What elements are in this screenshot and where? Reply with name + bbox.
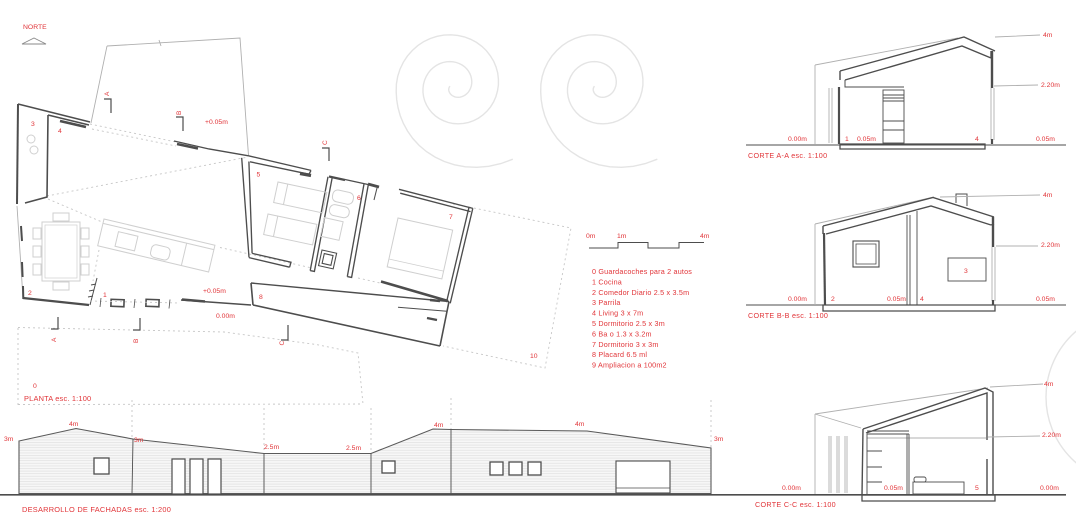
svg-text:4m: 4m [1043, 192, 1053, 199]
svg-text:0.05m: 0.05m [884, 485, 903, 492]
svg-text:2.20m: 2.20m [1041, 242, 1060, 249]
svg-text:NORTE: NORTE [23, 24, 47, 31]
svg-text:5 Dormitorio 2.5 x 3m: 5 Dormitorio 2.5 x 3m [592, 319, 665, 328]
svg-text:0 Guardacoches para 2 autos: 0 Guardacoches para 2 autos [592, 267, 692, 276]
svg-text:0.00m: 0.00m [216, 313, 235, 320]
svg-text:1: 1 [103, 292, 107, 299]
svg-text:2 Comedor Diario 2.5 x 3.5m: 2 Comedor Diario 2.5 x 3.5m [592, 288, 689, 297]
svg-text:3: 3 [964, 268, 968, 275]
svg-text:PLANTA esc. 1:100: PLANTA esc. 1:100 [24, 394, 91, 403]
svg-text:2: 2 [831, 296, 835, 303]
svg-text:4: 4 [58, 128, 62, 135]
svg-text:4m: 4m [1043, 32, 1053, 39]
svg-text:6: 6 [357, 195, 361, 202]
svg-text:8 Placard 6.5 ml: 8 Placard 6.5 ml [592, 350, 647, 359]
svg-text:4m: 4m [700, 233, 710, 240]
svg-text:4m: 4m [575, 421, 585, 428]
svg-text:4 Living 3 x 7m: 4 Living 3 x 7m [592, 309, 643, 318]
svg-text:+0.05m: +0.05m [203, 288, 226, 295]
svg-text:10: 10 [530, 353, 538, 360]
svg-text:0.05m: 0.05m [1036, 296, 1055, 303]
svg-text:3m: 3m [134, 437, 144, 444]
svg-text:4m: 4m [434, 422, 444, 429]
svg-text:1: 1 [845, 136, 849, 143]
svg-text:2.20m: 2.20m [1041, 82, 1060, 89]
svg-text:B: B [176, 111, 183, 115]
svg-text:A: A [104, 91, 111, 96]
svg-text:7 Dormitorio 3 x 3m: 7 Dormitorio 3 x 3m [592, 340, 659, 349]
svg-text:3m: 3m [4, 436, 14, 443]
svg-text:5: 5 [975, 485, 979, 492]
svg-text:6 Ba o 1.3 x 3.2m: 6 Ba o 1.3 x 3.2m [592, 329, 652, 338]
svg-text:C: C [279, 341, 286, 346]
svg-text:A: A [51, 337, 58, 342]
svg-text:0.05m: 0.05m [887, 296, 906, 303]
svg-text:4: 4 [920, 296, 924, 303]
svg-text:4m: 4m [69, 421, 79, 428]
svg-text:5: 5 [257, 172, 261, 179]
svg-text:1m: 1m [617, 233, 627, 240]
svg-text:0.00m: 0.00m [782, 485, 801, 492]
svg-text:3: 3 [31, 121, 35, 128]
svg-text:0.00m: 0.00m [788, 296, 807, 303]
svg-text:2.5m: 2.5m [346, 445, 361, 452]
svg-text:DESARROLLO DE FACHADAS esc. 1:: DESARROLLO DE FACHADAS esc. 1:200 [22, 505, 171, 514]
svg-text:3 Parrila: 3 Parrila [592, 298, 621, 307]
svg-text:2.5m: 2.5m [264, 444, 279, 451]
svg-text:0.00m: 0.00m [1040, 485, 1059, 492]
svg-text:2.20m: 2.20m [1042, 432, 1061, 439]
svg-text:C: C [322, 140, 329, 145]
svg-text:9 Ampliacion a 100m2: 9 Ampliacion a 100m2 [592, 361, 667, 370]
svg-text:B: B [133, 339, 140, 343]
svg-text:0.05m: 0.05m [857, 136, 876, 143]
svg-text:0.05m: 0.05m [1036, 136, 1055, 143]
svg-text:0m: 0m [586, 233, 596, 240]
svg-text:+0.05m: +0.05m [205, 119, 228, 126]
svg-text:4: 4 [975, 136, 979, 143]
svg-text:7: 7 [449, 214, 453, 221]
svg-text:1 Cocina: 1 Cocina [592, 277, 622, 286]
svg-text:0: 0 [33, 383, 37, 390]
svg-text:4m: 4m [1044, 381, 1054, 388]
svg-text:3m: 3m [714, 436, 724, 443]
svg-text:0.00m: 0.00m [788, 136, 807, 143]
svg-text:2: 2 [28, 290, 32, 297]
svg-text:CORTE A-A esc. 1:100: CORTE A-A esc. 1:100 [748, 151, 827, 160]
svg-text:CORTE B-B esc. 1:100: CORTE B-B esc. 1:100 [748, 311, 828, 320]
svg-text:CORTE C-C esc. 1:100: CORTE C-C esc. 1:100 [755, 500, 836, 509]
svg-text:8: 8 [259, 294, 263, 301]
